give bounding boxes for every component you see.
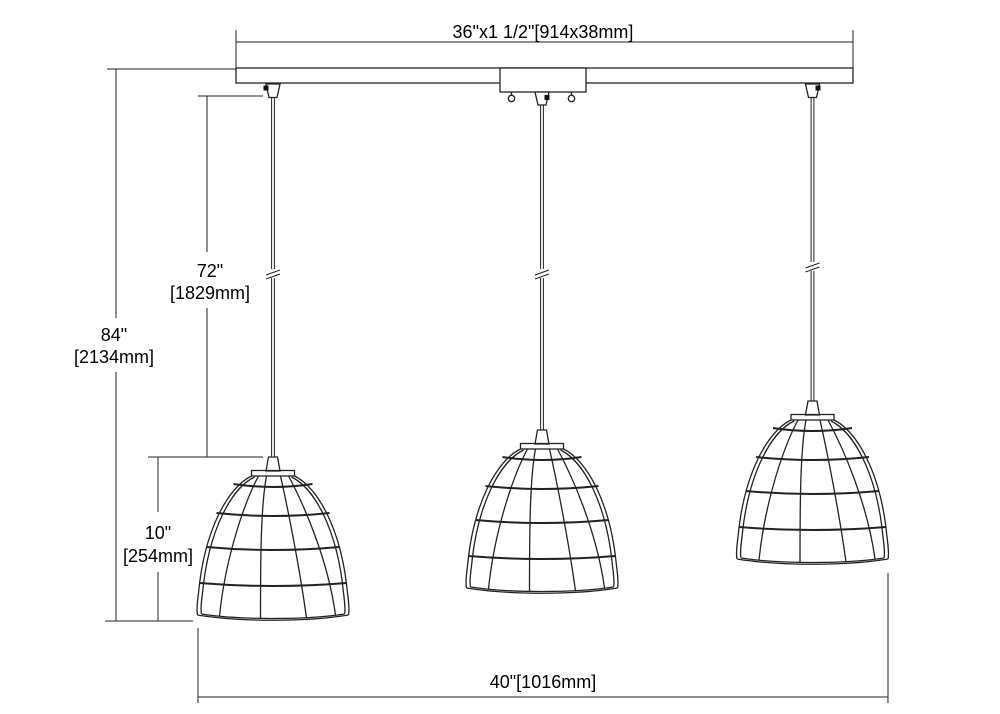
cord-center	[535, 92, 550, 430]
cord-right	[806, 84, 821, 401]
shade-dimension-10: 10" [254mm]	[123, 457, 193, 621]
cord-grip-screw	[816, 86, 821, 91]
cord-left	[264, 84, 281, 457]
canopy-box	[500, 68, 586, 92]
pendant-dimension-diagram: 36"x1 1/2"[914x38mm]	[0, 0, 1000, 714]
cord-dimension-label-mm: [1829mm]	[170, 283, 250, 303]
pendant-shade-center	[466, 430, 618, 593]
canopy-hook-right-icon	[568, 95, 574, 101]
height-dimension-label-in: 84"	[101, 325, 127, 345]
bar-dimension-label: 36"x1 1/2"[914x38mm]	[453, 22, 634, 42]
shade-dimension-label-in: 10"	[145, 523, 171, 543]
pendant-shade-right	[736, 401, 888, 564]
cord-dimension-72: 72" [1829mm]	[148, 96, 263, 457]
pendant-shade-left	[197, 457, 349, 620]
cord-grip-screw	[264, 86, 269, 91]
cord-break-icon	[266, 269, 280, 279]
canopy-hook-left-icon	[508, 95, 514, 101]
diagram-canvas: 36"x1 1/2"[914x38mm]	[0, 0, 1000, 714]
cord-grip-screw	[545, 95, 550, 100]
cord-dimension-label-in: 72"	[197, 261, 223, 281]
cord-break-icon	[806, 262, 820, 272]
cord-break-icon	[535, 269, 549, 279]
width-dimension-label: 40"[1016mm]	[490, 672, 596, 692]
width-dimension-40: 40"[1016mm]	[198, 573, 888, 703]
height-dimension-label-mm: [2134mm]	[74, 347, 154, 367]
shade-dimension-label-mm: [254mm]	[123, 546, 193, 566]
bar-dimension-36: 36"x1 1/2"[914x38mm]	[236, 22, 853, 68]
